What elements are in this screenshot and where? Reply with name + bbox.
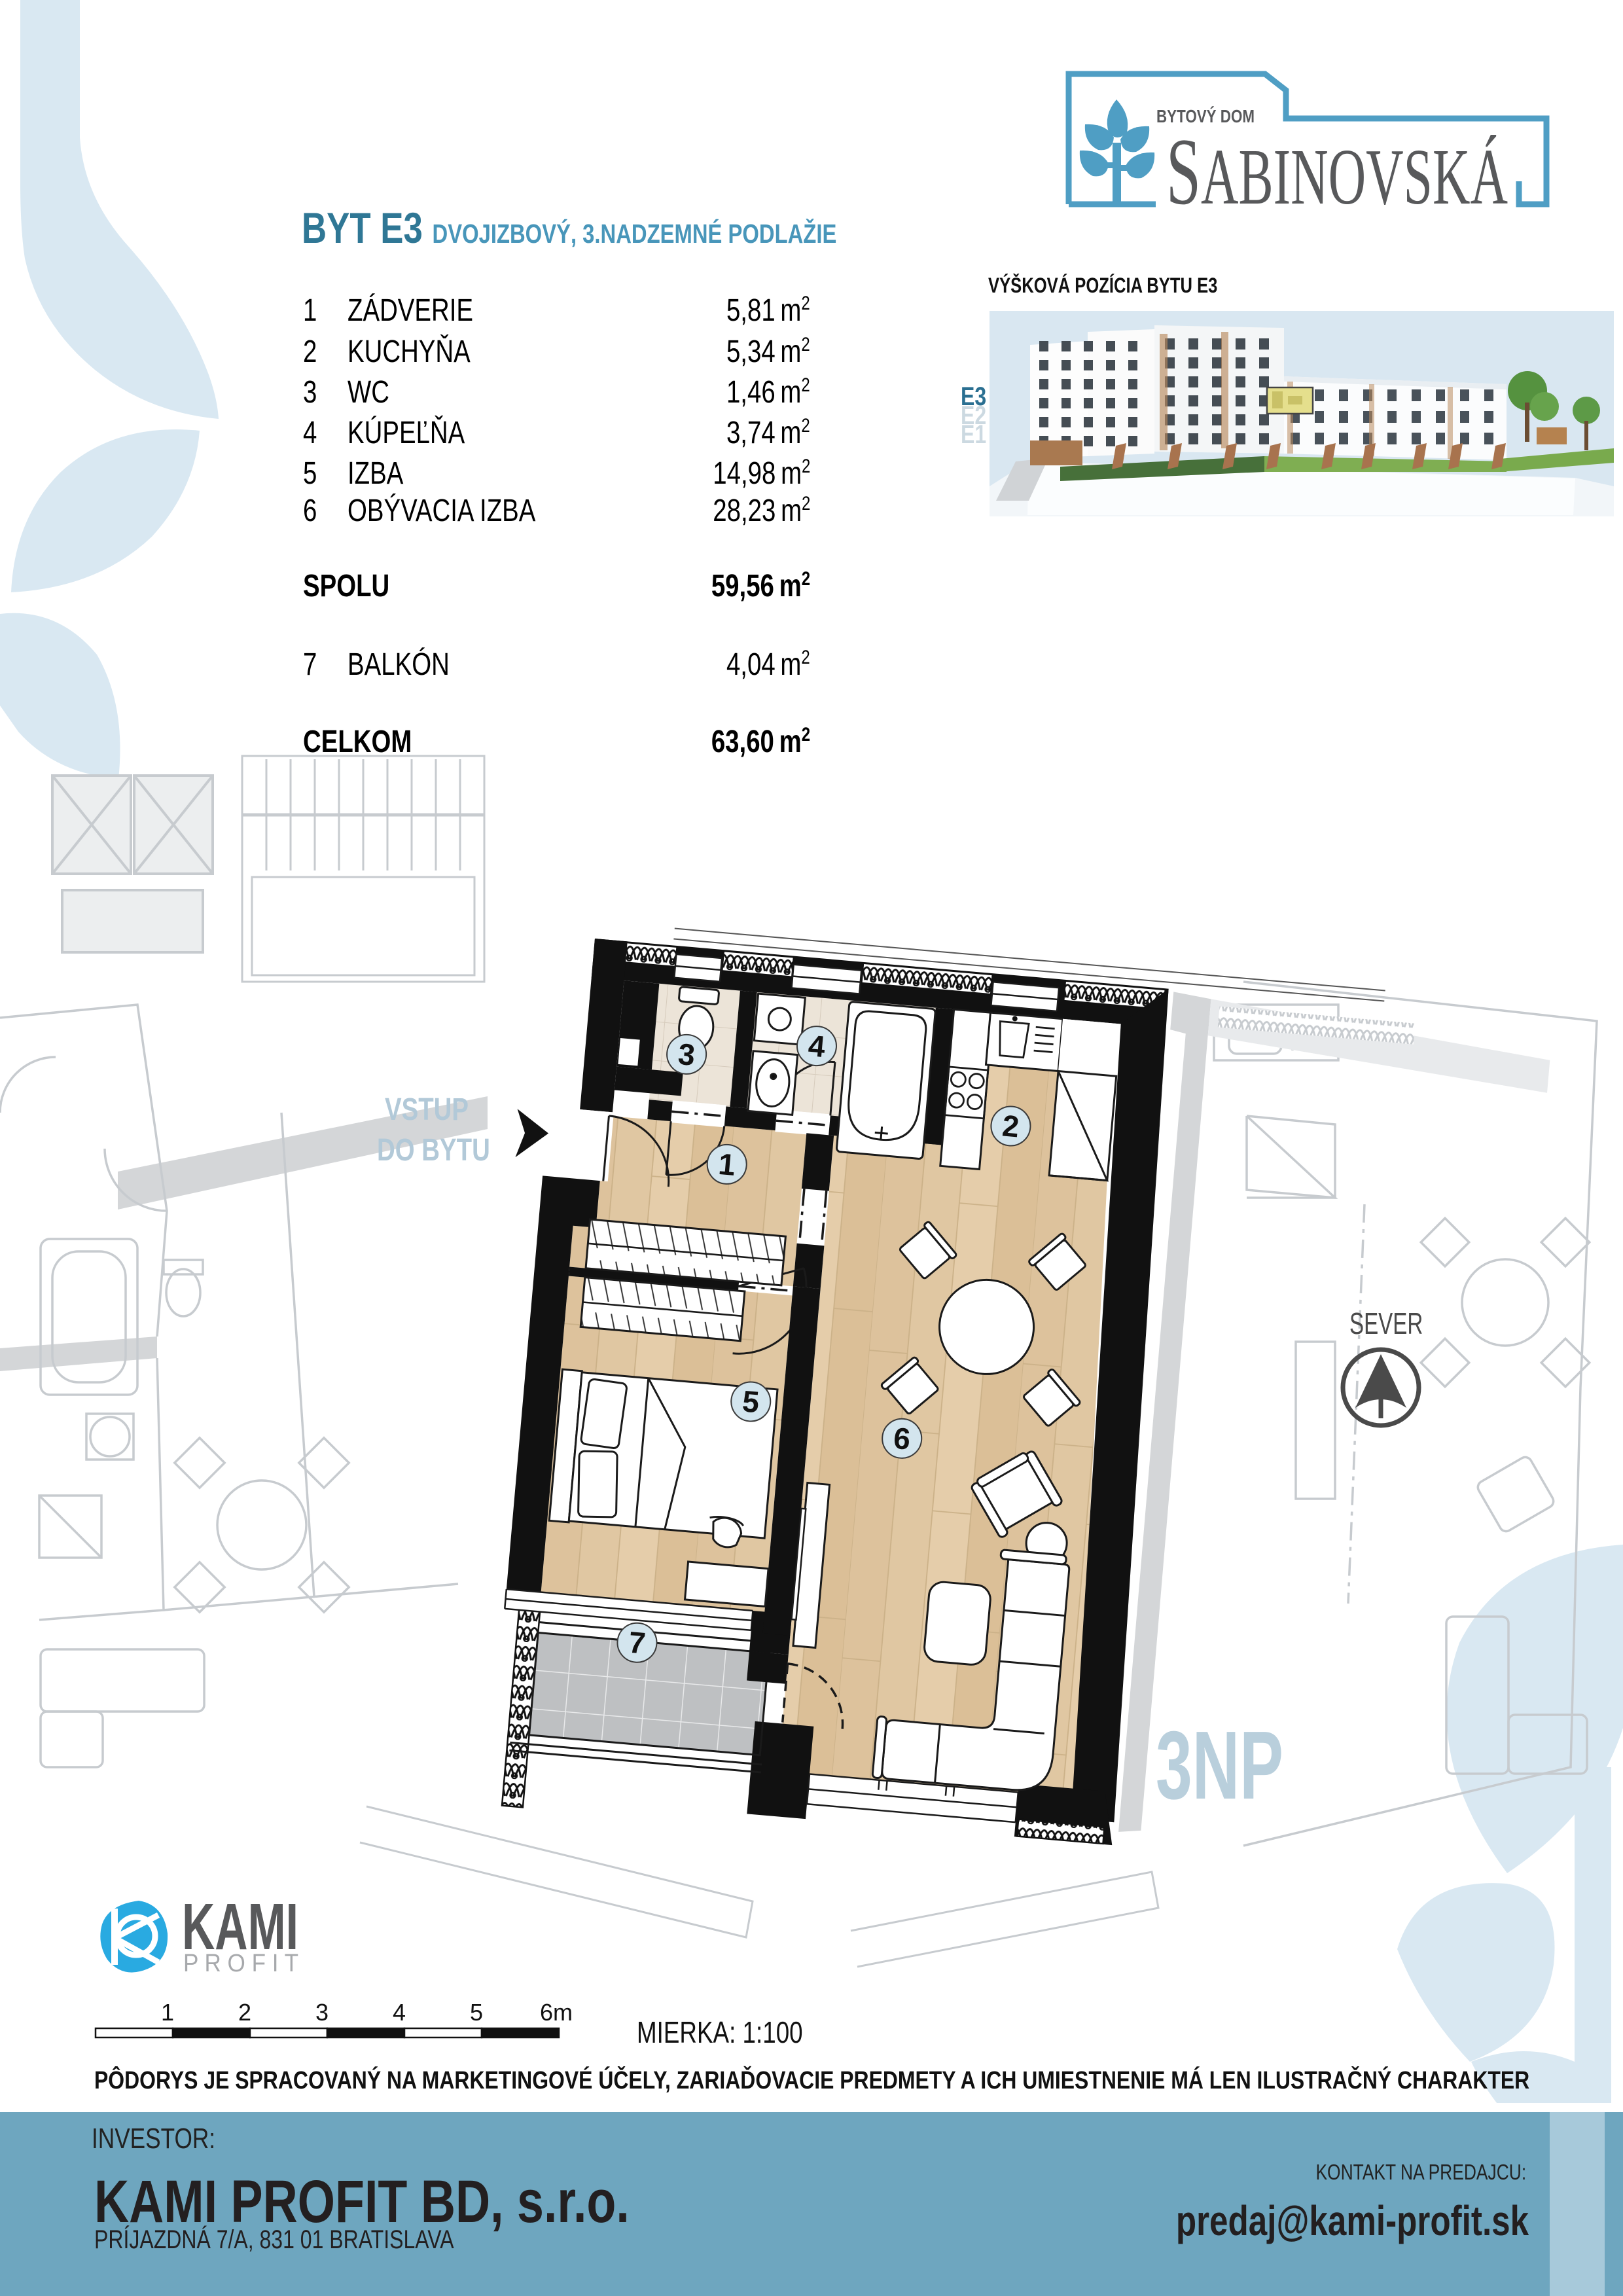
svg-text:5: 5 (470, 2000, 483, 2026)
svg-text:3: 3 (677, 1037, 696, 1072)
svg-text:2: 2 (1001, 1108, 1020, 1143)
svg-text:2: 2 (238, 2000, 251, 2026)
svg-text:4: 4 (807, 1028, 827, 1064)
svg-text:1: 1 (717, 1147, 737, 1182)
svg-text:5: 5 (741, 1384, 760, 1419)
svg-text:P R O F I T: P R O F I T (183, 1950, 298, 1977)
svg-text:3NP: 3NP (1156, 1712, 1283, 1820)
svg-text:3: 3 (315, 2000, 329, 2026)
svg-text:SABINOVSKÁ: SABINOVSKÁ (1166, 118, 1508, 224)
svg-text:6: 6 (892, 1421, 912, 1456)
svg-text:1: 1 (161, 2000, 174, 2026)
svg-text:7: 7 (627, 1625, 647, 1660)
svg-text:6m: 6m (540, 2000, 573, 2026)
svg-text:4: 4 (393, 2000, 406, 2026)
